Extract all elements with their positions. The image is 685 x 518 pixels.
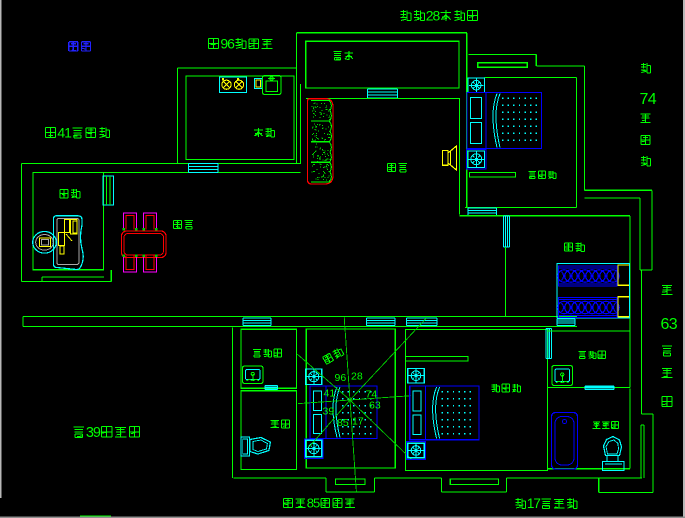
svg-text:85: 85: [337, 417, 349, 429]
svg-text:39: 39: [323, 406, 335, 418]
svg-text:9: 9: [93, 425, 101, 441]
svg-text:7: 7: [533, 496, 541, 511]
svg-text:5: 5: [313, 496, 320, 511]
svg-text:63: 63: [369, 400, 381, 412]
svg-text:6: 6: [227, 35, 235, 51]
svg-text:28: 28: [351, 371, 363, 383]
svg-text:4: 4: [648, 91, 657, 108]
svg-text:96: 96: [335, 372, 347, 384]
svg-text:8: 8: [433, 7, 441, 23]
svg-text:1: 1: [64, 124, 72, 140]
svg-text:17: 17: [352, 416, 364, 428]
svg-text:3: 3: [669, 316, 678, 333]
svg-text:41: 41: [324, 388, 336, 400]
